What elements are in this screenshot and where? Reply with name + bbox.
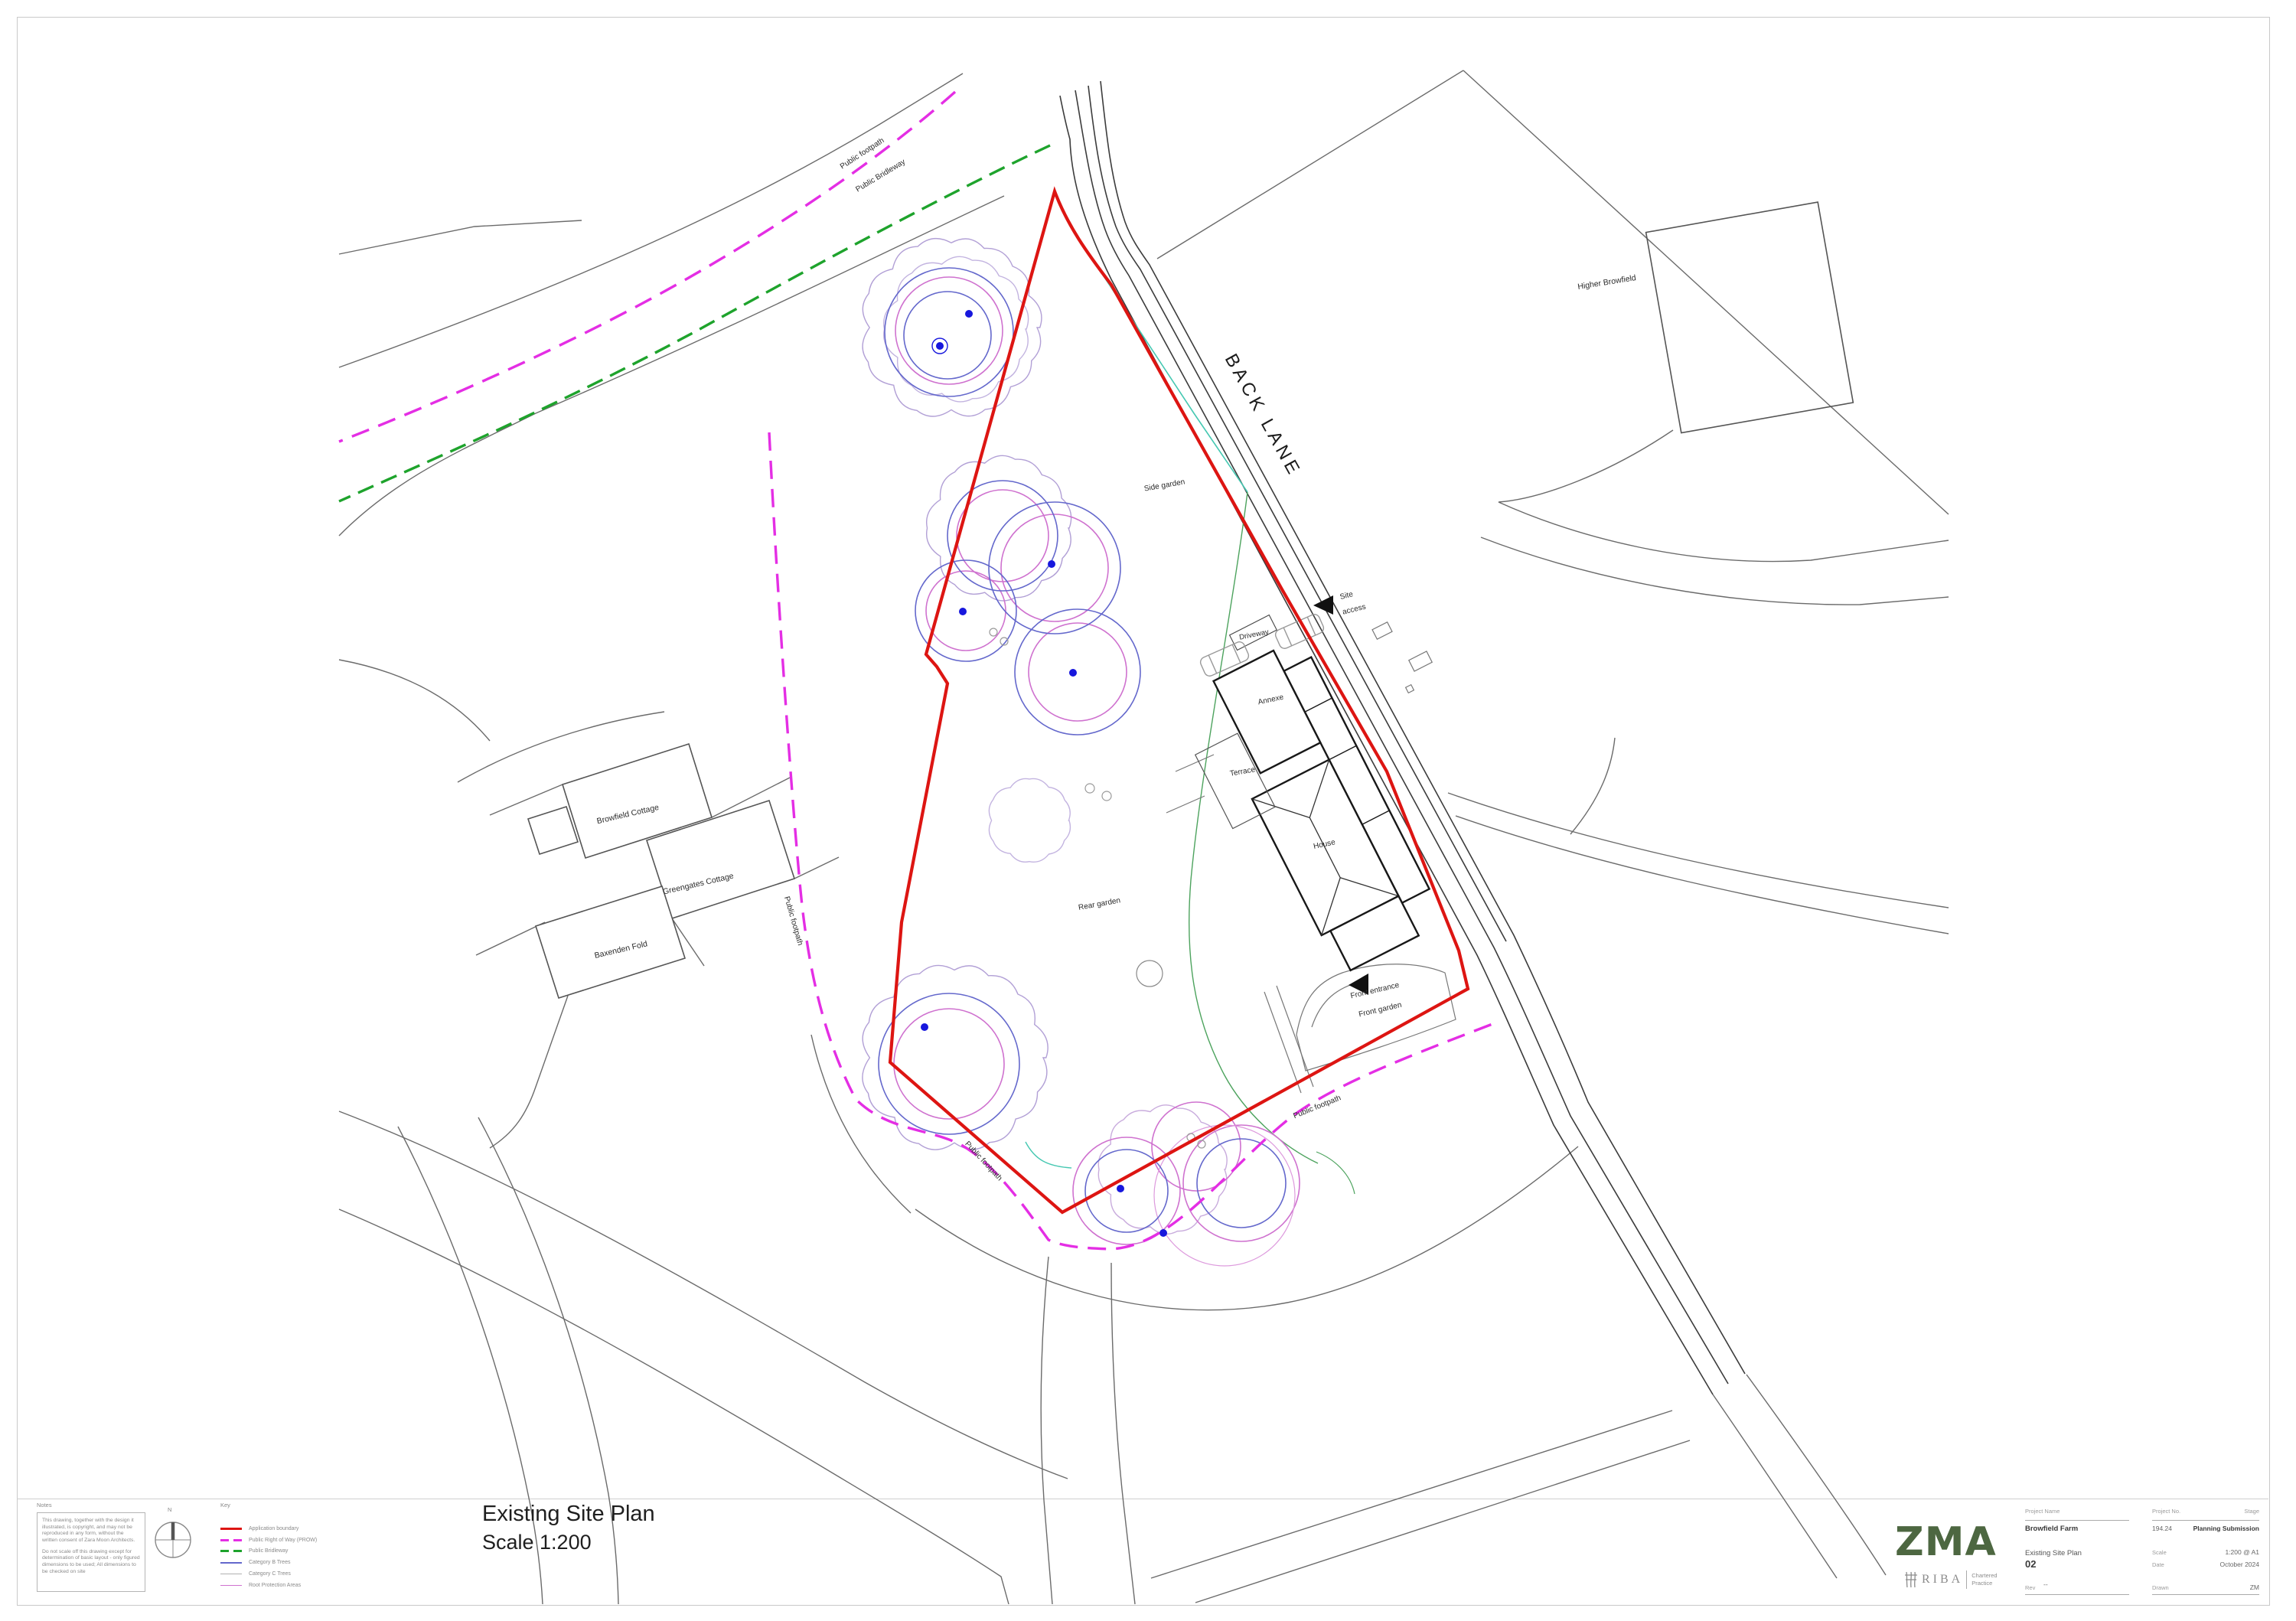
underline bbox=[2025, 1520, 2129, 1521]
riba-chartered: Chartered bbox=[1971, 1572, 1997, 1580]
tree-trunk-dots-segment bbox=[1048, 560, 1055, 568]
context-linework-segment bbox=[339, 660, 490, 741]
scale-label: Scale bbox=[2152, 1549, 2167, 1556]
front-garden-label: Front garden bbox=[1358, 1001, 1402, 1019]
key-item: Application boundary bbox=[220, 1523, 317, 1535]
category-c-trees-segment bbox=[1085, 784, 1094, 793]
riba-suffix: Chartered Practice bbox=[1971, 1572, 1997, 1587]
public-bridleway-label: Public Bridleway bbox=[854, 158, 907, 194]
roadside-structures-segment bbox=[1372, 622, 1392, 639]
tree-trunk-dots-segment bbox=[959, 608, 967, 615]
buildings bbox=[1154, 607, 1446, 989]
tree-canopies-segment bbox=[863, 239, 1042, 416]
plan-scale: Scale 1:200 bbox=[482, 1531, 592, 1554]
category-c-trees-segment bbox=[1102, 791, 1111, 801]
project-name-label: Project Name bbox=[2025, 1508, 2060, 1515]
context-linework-segment bbox=[1195, 1440, 1690, 1603]
stage-label: Stage bbox=[2198, 1508, 2259, 1515]
riba-practice: Practice bbox=[1971, 1580, 1997, 1587]
key-item: Category C Trees bbox=[220, 1568, 317, 1580]
context-linework-segment bbox=[794, 857, 839, 879]
application-boundary bbox=[890, 191, 1468, 1212]
tree-trunk-dots-segment bbox=[1159, 1229, 1167, 1237]
notes-box: This drawing, together with the design i… bbox=[37, 1512, 145, 1592]
key-swatch bbox=[220, 1562, 242, 1564]
category-b-trees-segment bbox=[904, 292, 991, 379]
side-garden-label: Side garden bbox=[1143, 478, 1186, 493]
context-linework-segment bbox=[339, 220, 582, 254]
tree-trunk-dots-segment bbox=[936, 342, 944, 350]
plan-title: Existing Site Plan bbox=[482, 1502, 655, 1527]
project-no-value: 194.24 bbox=[2152, 1525, 2172, 1532]
project-name-value: Browfield Farm bbox=[2025, 1525, 2078, 1533]
context-linework-segment bbox=[1481, 537, 1949, 605]
back-lane-road bbox=[1060, 81, 1745, 1394]
riba-crest-icon bbox=[1904, 1570, 1918, 1589]
context-linework-segment bbox=[339, 1209, 1009, 1604]
context-linework-segment bbox=[490, 996, 568, 1148]
zma-logo: ZMA bbox=[1889, 1520, 2011, 1563]
rear-garden-label: Rear garden bbox=[1078, 896, 1121, 912]
context-linework-segment bbox=[1111, 1263, 1135, 1604]
compass-icon bbox=[153, 1520, 193, 1560]
rev-value: -- bbox=[2043, 1580, 2048, 1588]
date-value: October 2024 bbox=[2183, 1561, 2259, 1568]
root-protection-areas-segment bbox=[895, 277, 1003, 384]
context-linework-segment bbox=[1713, 1394, 1837, 1578]
key-items: Application boundaryPublic Right of Way … bbox=[220, 1523, 317, 1591]
key-swatch bbox=[220, 1539, 242, 1541]
public-footpath-label-bottom-right: Public footpath bbox=[1292, 1094, 1342, 1120]
key-item-label: Public Right of Way (PROW) bbox=[249, 1538, 317, 1543]
context-linework-segment bbox=[339, 73, 963, 367]
notes-heading: Notes bbox=[37, 1502, 52, 1508]
site-plan-drawing: BACK LANE Higher Browfield Side garden R… bbox=[0, 0, 2296, 1621]
key-item: Root Protection Areas bbox=[220, 1580, 317, 1591]
title-block: Project Name Browfield Farm Project No. … bbox=[2020, 1502, 2264, 1601]
context-linework-segment bbox=[1151, 1411, 1672, 1578]
root-protection-areas-segment bbox=[1001, 514, 1108, 621]
rev-label: Rev bbox=[2025, 1584, 2035, 1591]
site-access-label-line2: access bbox=[1342, 602, 1367, 616]
category-c-trees bbox=[990, 628, 1205, 1148]
category-c-trees-segment bbox=[1137, 961, 1163, 987]
date-label: Date bbox=[2152, 1561, 2164, 1568]
tree-canopies-segment bbox=[1098, 1105, 1227, 1235]
public-right-of-way-path bbox=[339, 92, 1492, 1249]
zma-logo-text: ZMA bbox=[1895, 1520, 1997, 1563]
tree-trunk-dots bbox=[921, 310, 1167, 1237]
root-protection-areas-segment bbox=[1154, 1125, 1295, 1266]
public-bridleway-path-segment bbox=[339, 145, 1050, 501]
cottages bbox=[528, 744, 794, 998]
context-linework-segment bbox=[1041, 1257, 1052, 1604]
underline bbox=[2152, 1594, 2259, 1595]
key-item: Public Bridleway bbox=[220, 1546, 317, 1557]
back-lane-road-segment bbox=[1075, 90, 1728, 1384]
higher-browfield-label: Higher Browfield bbox=[1577, 273, 1637, 292]
project-no-label: Project No. bbox=[2152, 1508, 2180, 1515]
key-item-label: Application boundary bbox=[249, 1526, 298, 1531]
key-swatch bbox=[220, 1585, 242, 1587]
context-linework-segment bbox=[1463, 70, 1949, 514]
context-linework-segment bbox=[1448, 793, 1949, 908]
underline bbox=[2152, 1520, 2259, 1521]
front-garden-segment bbox=[1264, 992, 1301, 1093]
key-swatch bbox=[220, 1574, 242, 1574]
key-item-label: Category B Trees bbox=[249, 1560, 290, 1565]
category-c-trees-segment bbox=[990, 628, 997, 636]
drawn-value: ZM bbox=[2183, 1583, 2259, 1591]
site-access-label-line1: Site bbox=[1339, 590, 1355, 602]
roadside-structures-segment bbox=[1406, 685, 1414, 693]
back-lane-road-segment bbox=[1060, 96, 1713, 1394]
category-b-trees-segment bbox=[1015, 609, 1140, 735]
key-item-label: Category C Trees bbox=[249, 1571, 291, 1577]
key-swatch bbox=[220, 1528, 242, 1530]
key-item-label: Root Protection Areas bbox=[249, 1583, 301, 1588]
public-footpath-label-left: Public footpath bbox=[782, 895, 804, 947]
context-linework-segment bbox=[490, 784, 563, 815]
public-bridleway-path bbox=[339, 145, 1050, 501]
category-b-trees-segment bbox=[947, 481, 1058, 591]
context-linework-segment bbox=[476, 922, 545, 955]
roadside-structures-segment bbox=[1409, 651, 1432, 671]
notes-paragraph-1: This drawing, together with the design i… bbox=[42, 1518, 140, 1544]
riba-badge: RIBA Chartered Practice bbox=[1904, 1570, 1998, 1589]
riba-crest-icon-segment bbox=[1905, 1572, 1917, 1587]
category-b-trees bbox=[879, 268, 1286, 1232]
key-item-label: Public Bridleway bbox=[249, 1548, 288, 1554]
root-protection-areas-segment bbox=[1183, 1125, 1300, 1241]
key-item: Category B Trees bbox=[220, 1557, 317, 1568]
context-linework-segment bbox=[339, 196, 1004, 536]
context-linework-segment bbox=[1570, 738, 1615, 834]
north-label: N bbox=[168, 1506, 171, 1513]
garden-lines-segment bbox=[1026, 1142, 1071, 1168]
car-segment bbox=[1283, 628, 1292, 646]
context-linework-segment bbox=[1157, 70, 1463, 259]
context-linework-segment bbox=[339, 1111, 1068, 1479]
key-swatch bbox=[220, 1550, 242, 1552]
tree-trunk-dots-segment bbox=[921, 1023, 928, 1031]
notes-paragraph-2: Do not scale off this drawing except for… bbox=[42, 1549, 140, 1576]
garden-lines-segment bbox=[1316, 1152, 1355, 1194]
site-access-arrow bbox=[1313, 595, 1333, 615]
root-protection-areas-segment bbox=[1029, 623, 1127, 721]
tree-trunk-dots-segment bbox=[1069, 669, 1077, 677]
cottage-wing-outline bbox=[528, 807, 578, 854]
car-segment bbox=[1208, 655, 1217, 674]
tree-trunk-dots-segment bbox=[1117, 1185, 1124, 1192]
front-garden-outline bbox=[1296, 964, 1456, 1071]
tree-trunk-dots-segment bbox=[965, 310, 973, 318]
roadside-structures bbox=[1372, 622, 1432, 693]
tree-canopies-segment bbox=[989, 778, 1070, 862]
category-b-trees-segment bbox=[1197, 1139, 1286, 1228]
context-linework-segment bbox=[1456, 816, 1949, 934]
baxenden-fold-outline bbox=[536, 886, 685, 998]
riba-divider bbox=[1966, 1570, 1967, 1589]
back-lane-label: BACK LANE bbox=[1221, 351, 1306, 481]
root-protection-areas-segment bbox=[957, 490, 1049, 582]
stage-value: Planning Submission bbox=[2183, 1525, 2259, 1532]
underline bbox=[2025, 1594, 2129, 1595]
root-protection-areas-segment bbox=[894, 1009, 1004, 1119]
context-linework-segment bbox=[1499, 502, 1949, 562]
front-garden-segment bbox=[1176, 755, 1214, 771]
drawn-label: Drawn bbox=[2152, 1584, 2169, 1591]
riba-text: RIBA bbox=[1922, 1573, 1963, 1587]
root-protection-areas-segment bbox=[1073, 1137, 1180, 1244]
drawing-sheet: { "sheet": { "plan_title": "Existing Sit… bbox=[0, 0, 2296, 1621]
drawing-title-value: Existing Site Plan bbox=[2025, 1549, 2082, 1557]
drawing-no-value: 02 bbox=[2025, 1558, 2036, 1570]
terrace-label: Terrace bbox=[1229, 765, 1256, 778]
key-heading: Key bbox=[220, 1502, 230, 1508]
scale-value: 1:200 @ A1 bbox=[2183, 1548, 2259, 1556]
key-item: Public Right of Way (PROW) bbox=[220, 1535, 317, 1546]
public-right-of-way-path-segment bbox=[339, 92, 955, 442]
context-linework-segment bbox=[1499, 430, 1673, 502]
